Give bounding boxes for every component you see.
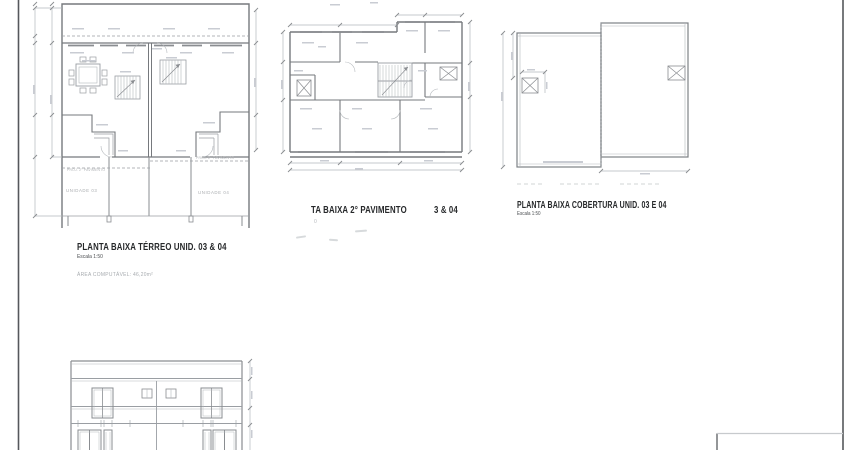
proj-2-pavimento-label-right: PROJ. 2° PAVIMENTO <box>196 157 234 161</box>
cobertura-plan-title: PLANTA BAIXA COBERTURA UNID. 03 E 04 <box>517 201 667 211</box>
sheet-borders <box>19 0 844 450</box>
dim-text-marks <box>33 28 256 152</box>
unidade-03-label: UNIDADE 03 <box>66 189 97 194</box>
roof-plan-drawing <box>501 23 690 184</box>
drawing-sheet: PLANTA BAIXA TÉRREO UNID. 03 & 04 Escala… <box>0 0 850 450</box>
dim-text-marks <box>281 2 470 170</box>
pav2-plan-title-fragment-left: TA BAIXA 2° PAVIMENTO <box>311 206 407 216</box>
pav2-scale-fragment: 0 <box>314 220 317 225</box>
plans-linework <box>0 0 850 450</box>
unidade-04-label: UNIDADE 04 <box>198 191 229 196</box>
second-floor-plan-drawing <box>281 2 472 172</box>
proj-2-pavimento-label-left: PROJ. 2° PAVIMENTO <box>67 169 105 173</box>
terreo-scale-label: Escala 1:50 <box>77 255 103 261</box>
pav2-plan-title-fragment-right: 3 & 04 <box>434 206 458 216</box>
front-elevation-drawing <box>71 359 253 450</box>
cobertura-scale-label: Escala 1:50 <box>517 212 541 217</box>
terreo-area-note: ÁREA COMPUTÁVEL: 46,20m² <box>77 273 153 279</box>
terreo-plan-title: PLANTA BAIXA TÉRREO UNID. 03 & 04 <box>77 243 227 253</box>
